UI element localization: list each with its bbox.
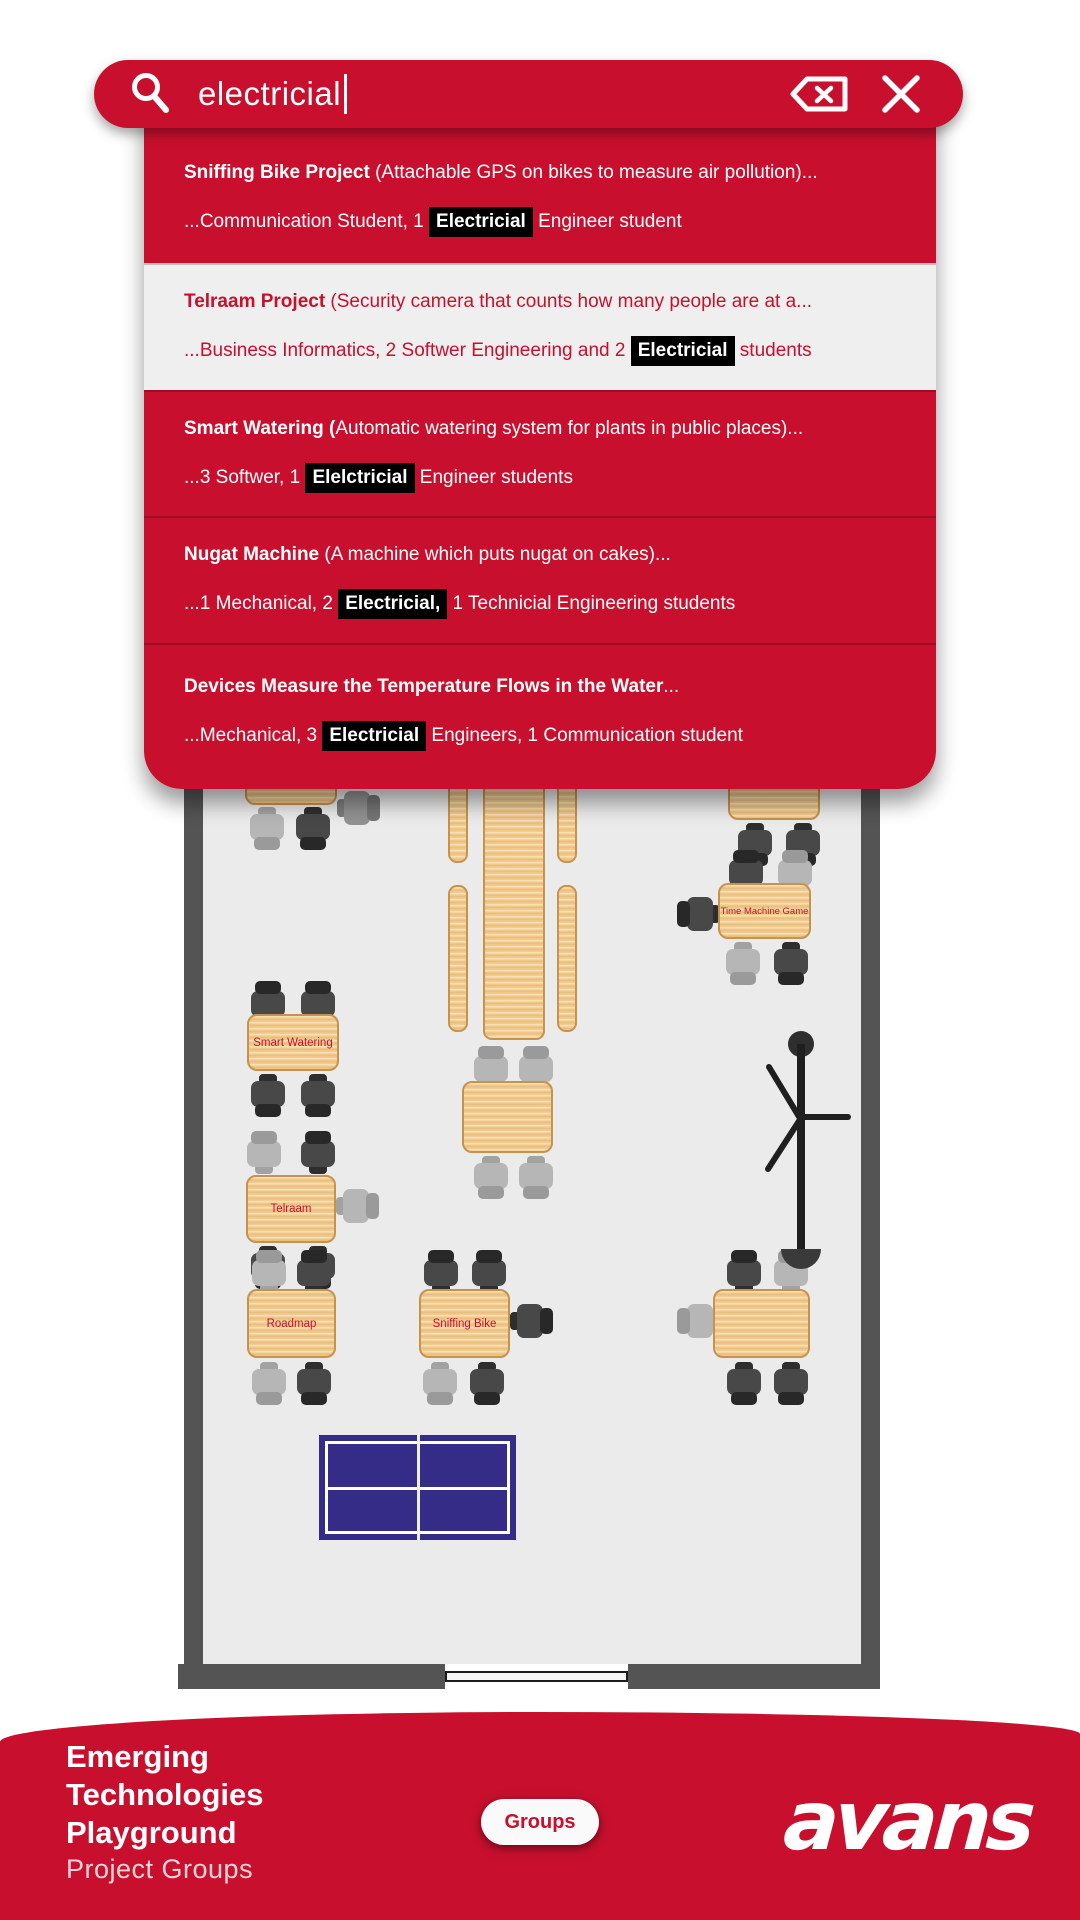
search-input[interactable]: electricial bbox=[198, 74, 789, 114]
result-title: Nugat Machine (A machine which puts nuga… bbox=[184, 542, 906, 568]
close-button[interactable] bbox=[879, 72, 923, 116]
chair bbox=[677, 897, 721, 931]
long-table bbox=[557, 885, 577, 1032]
search-results-dropdown: Sniffing Bike Project (Attachable GPS on… bbox=[144, 92, 936, 789]
chair bbox=[472, 1250, 506, 1294]
table-telraam[interactable]: Telraam bbox=[246, 1175, 336, 1243]
chair bbox=[252, 1361, 286, 1405]
table-label: Smart Watering bbox=[253, 1037, 332, 1049]
chair bbox=[727, 1361, 761, 1405]
close-icon bbox=[879, 72, 923, 116]
result-smart-watering[interactable]: Smart Watering (Automatic watering syste… bbox=[144, 390, 936, 516]
table-right-unlabeled[interactable] bbox=[713, 1289, 810, 1358]
chair bbox=[726, 941, 760, 985]
chair bbox=[335, 1189, 379, 1223]
chair bbox=[297, 1250, 331, 1294]
chair bbox=[252, 1250, 286, 1294]
result-detail: ...Communication Student, 1 Electricial … bbox=[184, 207, 906, 237]
room-wall bbox=[178, 1664, 445, 1689]
chair bbox=[301, 1131, 335, 1175]
table-center[interactable] bbox=[462, 1081, 553, 1153]
table-label: Telraam bbox=[271, 1203, 312, 1215]
chair bbox=[774, 1361, 808, 1405]
table-label: Sniffing Bike bbox=[433, 1318, 497, 1330]
backspace-icon bbox=[789, 74, 851, 114]
table-time-machine-game[interactable]: Time Machine Game bbox=[718, 883, 811, 939]
backspace-button[interactable] bbox=[789, 74, 851, 114]
result-title: Smart Watering (Automatic watering syste… bbox=[184, 416, 906, 442]
table-sniffing-bike[interactable]: Sniffing Bike bbox=[419, 1289, 510, 1358]
result-devices-temperature-water[interactable]: Devices Measure the Temperature Flows in… bbox=[144, 643, 936, 789]
result-title: Telraam Project (Security camera that co… bbox=[184, 289, 906, 315]
table-roadmap[interactable]: Roadmap bbox=[247, 1289, 336, 1358]
result-detail: ...3 Softwer, 1 Elelctricial Engineer st… bbox=[184, 463, 906, 493]
table-label: Time Machine Game bbox=[721, 906, 809, 917]
result-title: Devices Measure the Temperature Flows in… bbox=[184, 674, 906, 700]
chair bbox=[424, 1250, 458, 1294]
result-detail: ...Business Informatics, 2 Softwer Engin… bbox=[184, 336, 906, 366]
long-table bbox=[448, 885, 468, 1032]
chair bbox=[774, 941, 808, 985]
chair bbox=[297, 1361, 331, 1405]
door bbox=[445, 1671, 628, 1682]
avans-logo: avans bbox=[781, 1774, 1034, 1869]
chair bbox=[336, 791, 380, 825]
page: Time Machine GameSmart WateringTelraamRo… bbox=[0, 0, 1080, 1920]
match-highlight: Electricial bbox=[631, 336, 735, 366]
chair bbox=[509, 1304, 553, 1338]
room-wall bbox=[184, 760, 203, 1664]
match-highlight: Electricial bbox=[429, 207, 533, 237]
coat-rack bbox=[748, 1028, 858, 1273]
text-cursor bbox=[344, 74, 347, 114]
chair bbox=[423, 1361, 457, 1405]
result-detail: ...1 Mechanical, 2 Electricial, 1 Techni… bbox=[184, 589, 906, 619]
match-highlight: Electricial, bbox=[338, 589, 447, 619]
chair bbox=[474, 1155, 508, 1199]
app-subtitle: Project Groups bbox=[66, 1854, 253, 1885]
chair bbox=[519, 1155, 553, 1199]
room-wall bbox=[861, 760, 880, 1664]
chair bbox=[247, 1131, 281, 1175]
result-detail: ...Mechanical, 3 Electricial Engineers, … bbox=[184, 721, 906, 751]
table-smart-watering[interactable]: Smart Watering bbox=[247, 1014, 339, 1071]
result-nugat-machine[interactable]: Nugat Machine (A machine which puts nuga… bbox=[144, 516, 936, 643]
chair bbox=[301, 1073, 335, 1117]
match-highlight: Elelctricial bbox=[305, 463, 414, 493]
chair bbox=[470, 1361, 504, 1405]
result-title: Sniffing Bike Project (Attachable GPS on… bbox=[184, 160, 906, 186]
chair bbox=[251, 1073, 285, 1117]
chair bbox=[296, 806, 330, 850]
room-wall bbox=[628, 1664, 880, 1689]
table-label: Roadmap bbox=[267, 1318, 317, 1330]
ping-pong-table bbox=[319, 1435, 516, 1540]
search-bar[interactable]: electricial bbox=[94, 60, 963, 128]
match-highlight: Electricial bbox=[322, 721, 426, 751]
chair bbox=[250, 806, 284, 850]
result-telraam-project[interactable]: Telraam Project (Security camera that co… bbox=[144, 263, 936, 390]
app-title: Emerging Technologies Playground bbox=[66, 1738, 264, 1852]
groups-button[interactable]: Groups bbox=[481, 1799, 599, 1845]
search-icon bbox=[128, 70, 172, 119]
footer: Emerging Technologies Playground Project… bbox=[0, 1712, 1080, 1920]
